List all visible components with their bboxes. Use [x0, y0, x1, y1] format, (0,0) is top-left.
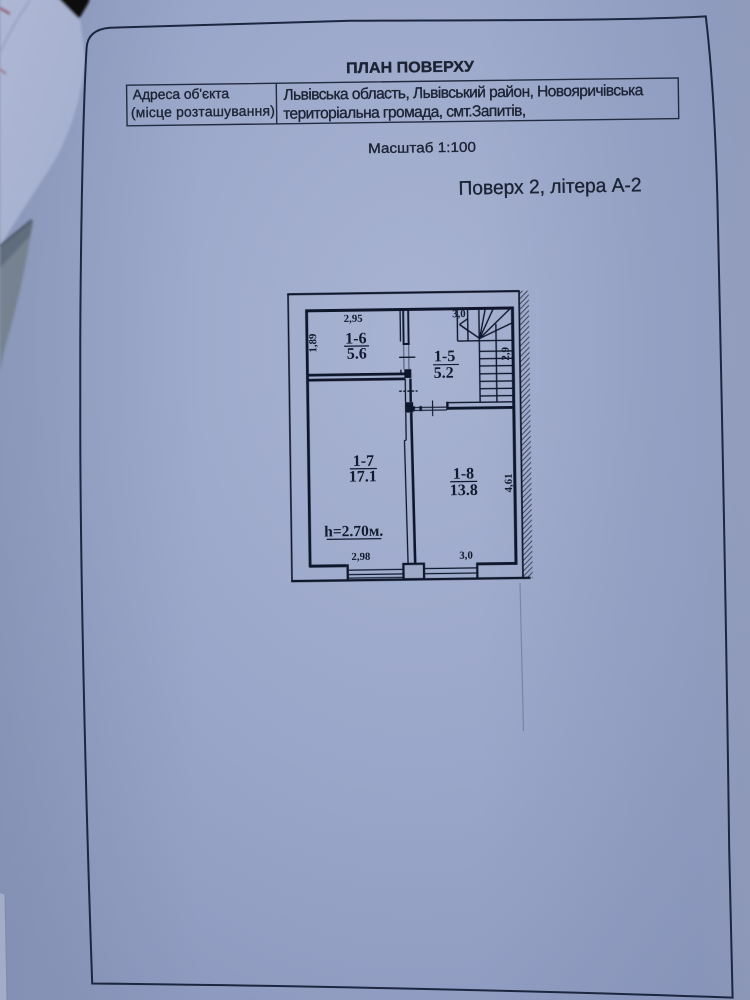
- svg-text:2,98: 2,98: [351, 551, 371, 563]
- svg-text:1-8: 1-8: [453, 465, 475, 482]
- svg-text:1,89: 1,89: [307, 333, 319, 353]
- svg-text:13.8: 13.8: [450, 482, 478, 499]
- svg-text:h=2.70м.: h=2.70м.: [324, 523, 383, 541]
- svg-text:ПЛАН ПОВЕРХУ: ПЛАН ПОВЕРХУ: [346, 58, 475, 77]
- svg-text:територіальна громада, смт.Зап: територіальна громада, смт.Запитів,: [283, 103, 526, 123]
- svg-text:3,0: 3,0: [459, 550, 473, 562]
- svg-text:2,9: 2,9: [500, 346, 512, 360]
- svg-text:17.1: 17.1: [349, 468, 377, 485]
- svg-text:Масштаб 1:100: Масштаб 1:100: [368, 139, 476, 156]
- svg-text:3,0: 3,0: [452, 308, 466, 320]
- svg-text:5.2: 5.2: [434, 365, 454, 382]
- svg-text:1-5: 1-5: [434, 348, 456, 365]
- svg-text:Адреса об'єкта: Адреса об'єкта: [133, 85, 230, 102]
- svg-text:5.6: 5.6: [347, 346, 367, 363]
- svg-text:2,95: 2,95: [344, 313, 363, 325]
- svg-text:Поверх 2, літера А-2: Поверх 2, літера А-2: [458, 174, 641, 200]
- svg-text:(місце розташування): (місце розташування): [131, 102, 275, 120]
- svg-text:4,61: 4,61: [503, 473, 515, 492]
